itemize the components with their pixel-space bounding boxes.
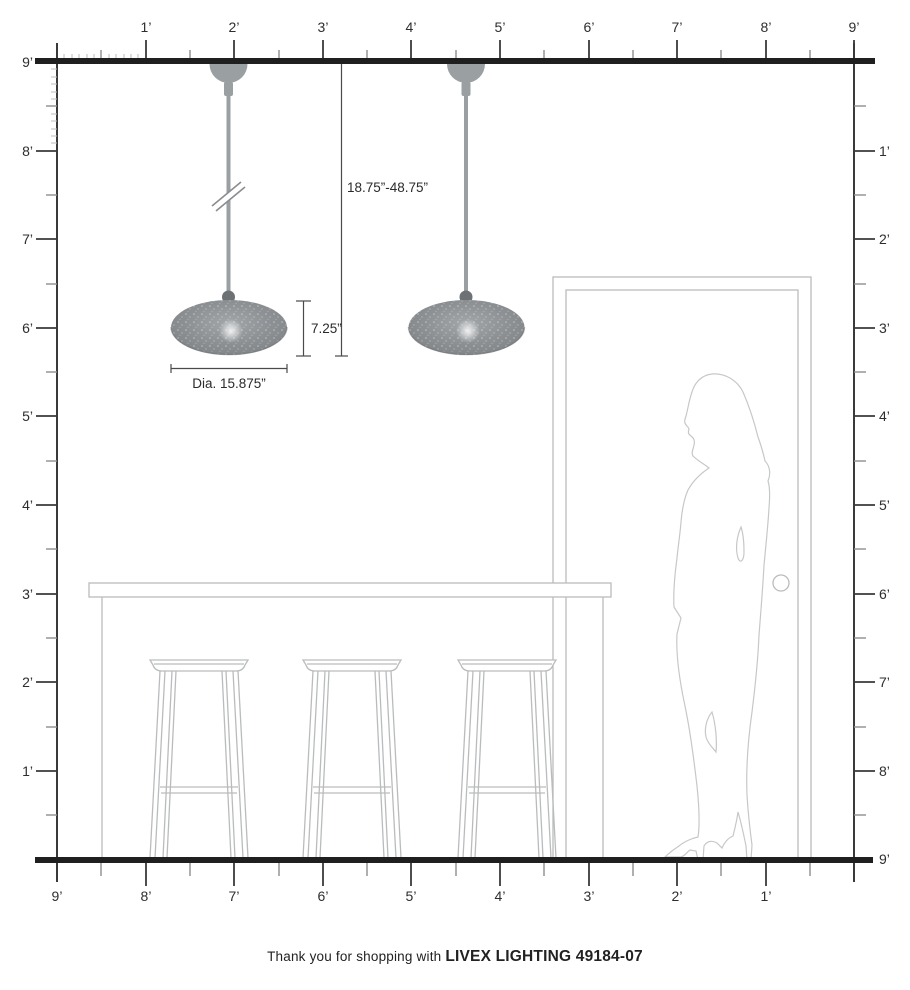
bottom-ruler-minor-ticks — [101, 862, 810, 876]
woman-leg-detail — [705, 712, 716, 752]
left-ruler-minor-ticks — [46, 106, 57, 815]
shade-diameter-label: Dia. 15.875” — [192, 376, 266, 391]
top-ruler-label: 7’ — [672, 19, 683, 35]
right-ruler-label: 1’ — [879, 143, 890, 159]
hang-rod — [464, 95, 468, 293]
footer-text: Thank you for shopping with LIVEX LIGHTI… — [0, 948, 910, 966]
right-ruler-minor-ticks — [854, 106, 866, 815]
canopy — [210, 64, 248, 83]
right-ruler-label: 6’ — [879, 586, 890, 602]
door — [553, 277, 811, 860]
left-ruler: 9’ 8’ 7’ 6’ 5’ 4’ 3’ 2’ 1’ — [22, 43, 57, 882]
door-frame-outer — [553, 277, 811, 860]
left-ruler-label: 5’ — [22, 408, 33, 424]
top-ruler-minor-ticks — [101, 50, 810, 59]
canopy-neck — [224, 82, 233, 96]
top-ruler-label: 5’ — [495, 19, 506, 35]
canopy — [447, 64, 485, 83]
left-ruler-label: 9’ — [22, 54, 33, 70]
top-ruler-label: 9’ — [849, 19, 860, 35]
door-knob — [773, 575, 789, 591]
bottom-ruler: 9’ 8’ 7’ 6’ 5’ 4’ 3’ 2’ 1’ — [52, 862, 810, 904]
right-ruler-label: 3’ — [879, 320, 890, 336]
right-ruler-label: 2’ — [879, 231, 890, 247]
bar-stool — [458, 660, 556, 858]
right-ruler-label: 9’ — [879, 851, 890, 867]
left-ruler-label: 1’ — [22, 763, 33, 779]
shade — [409, 300, 525, 355]
top-ruler: 1’ 2’ 3’ 4’ 5’ 6’ 7’ 8’ 9’ — [64, 19, 859, 60]
pendant-light — [171, 64, 287, 355]
bar-stool — [150, 660, 248, 858]
left-ruler-label: 2’ — [22, 674, 33, 690]
top-ruler-label: 8’ — [761, 19, 772, 35]
woman-hand-detail — [737, 527, 744, 561]
woman-silhouette — [665, 374, 770, 860]
bottom-ruler-label: 2’ — [672, 888, 683, 904]
footer-brand: LIVEX LIGHTING 49184-07 — [445, 948, 643, 965]
dimension-diagram: 1’ 2’ 3’ 4’ 5’ 6’ 7’ 8’ 9’ — [0, 0, 910, 990]
bar-stool — [303, 660, 401, 858]
bottom-ruler-label: 8’ — [141, 888, 152, 904]
top-ruler-label: 1’ — [141, 19, 152, 35]
shade-diameter-dimension: Dia. 15.875” — [171, 364, 287, 391]
bottom-ruler-label: 1’ — [761, 888, 772, 904]
right-ruler: 1’ 2’ 3’ 4’ 5’ 6’ 7’ 8’ 9’ — [854, 43, 890, 882]
bottom-ruler-label: 4’ — [495, 888, 506, 904]
left-ruler-label: 8’ — [22, 143, 33, 159]
bottom-ruler-label: 3’ — [584, 888, 595, 904]
left-ruler-label: 3’ — [22, 586, 33, 602]
left-ruler-label: 7’ — [22, 231, 33, 247]
shade — [171, 300, 287, 355]
bottom-ruler-label: 6’ — [318, 888, 329, 904]
canopy-neck — [462, 82, 471, 96]
pendant-light — [409, 64, 525, 355]
woman-outline — [665, 374, 770, 860]
top-ruler-major-ticks — [146, 40, 854, 59]
bottom-ruler-label: 9’ — [52, 888, 63, 904]
right-ruler-label: 5’ — [879, 497, 890, 513]
left-ruler-label: 6’ — [22, 320, 33, 336]
top-ruler-label: 3’ — [318, 19, 329, 35]
top-ruler-label: 2’ — [229, 19, 240, 35]
bottom-ruler-label: 7’ — [229, 888, 240, 904]
shade-height-dimension: 7.25” — [296, 301, 342, 356]
diagram-svg: 1’ 2’ 3’ 4’ 5’ 6’ 7’ 8’ 9’ — [0, 0, 910, 990]
hang-range-dimension: 18.75”-48.75” — [335, 64, 428, 356]
bottom-ruler-label: 5’ — [406, 888, 417, 904]
right-ruler-label: 4’ — [879, 408, 890, 424]
counter-top — [89, 583, 611, 597]
shade-height-label: 7.25” — [311, 321, 342, 336]
right-ruler-label: 7’ — [879, 674, 890, 690]
right-ruler-label: 8’ — [879, 763, 890, 779]
hang-range-label: 18.75”-48.75” — [347, 180, 428, 195]
top-ruler-label: 4’ — [406, 19, 417, 35]
footer-prefix: Thank you for shopping with — [267, 949, 445, 964]
left-ruler-label: 4’ — [22, 497, 33, 513]
top-ruler-label: 6’ — [584, 19, 595, 35]
